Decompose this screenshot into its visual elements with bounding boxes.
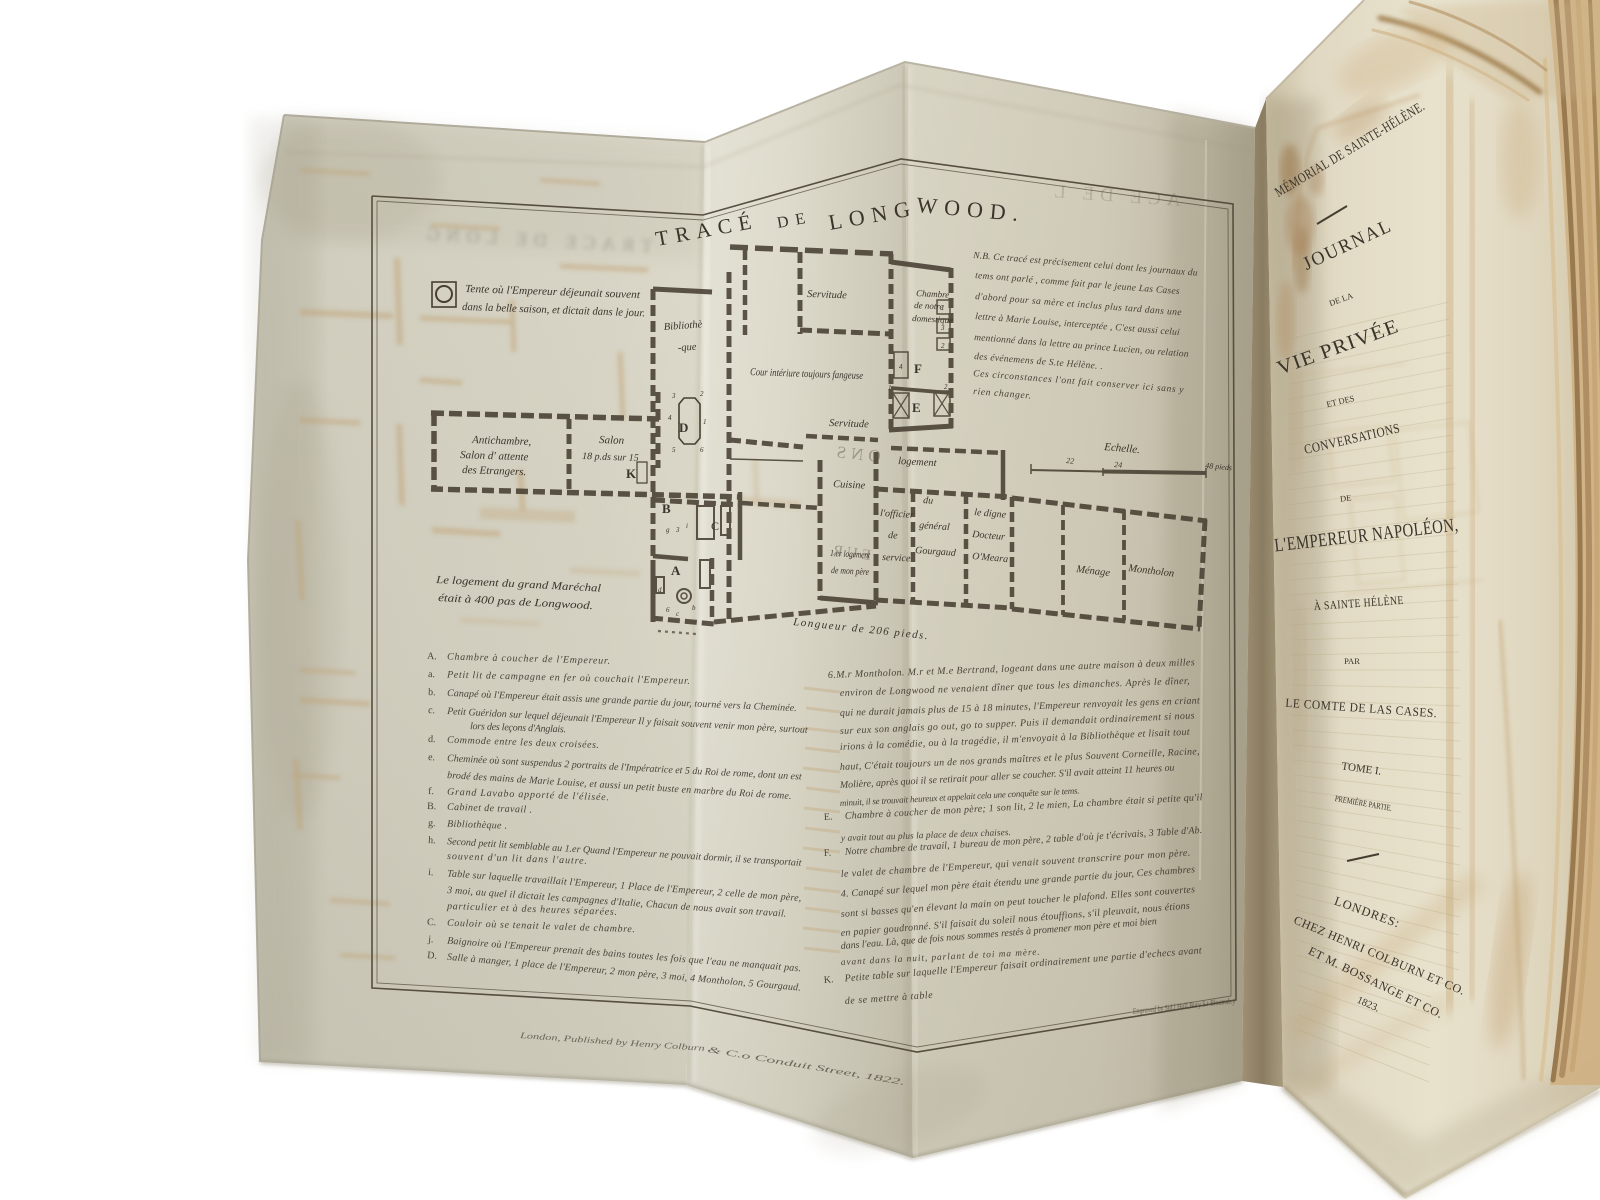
svg-text:4: 4 <box>668 414 672 422</box>
svg-text:l'officier: l'officier <box>880 508 914 521</box>
svg-text:domestique: domestique <box>912 313 953 325</box>
svg-text:24: 24 <box>1114 460 1123 470</box>
svg-text:4: 4 <box>899 363 903 371</box>
svg-text:2: 2 <box>944 383 948 391</box>
svg-text:1: 1 <box>703 418 707 426</box>
svg-text:1.er logement: 1.er logement <box>830 549 871 561</box>
svg-text:b: b <box>692 604 696 612</box>
svg-text:3: 3 <box>675 526 680 534</box>
svg-text:des Etrangers.: des Etrangers. <box>462 464 527 478</box>
svg-text:Chambre: Chambre <box>916 288 950 300</box>
svg-text:général: général <box>919 520 950 533</box>
svg-text:DE: DE <box>1339 492 1351 503</box>
svg-text:22: 22 <box>1066 456 1075 466</box>
svg-text:F: F <box>914 361 922 376</box>
svg-text:1: 1 <box>941 304 945 312</box>
svg-text:logement: logement <box>898 456 938 469</box>
svg-text:Servitude: Servitude <box>829 418 869 430</box>
svg-text:Cuisine: Cuisine <box>833 479 866 492</box>
svg-text:5: 5 <box>672 446 676 454</box>
svg-text:K: K <box>626 466 637 481</box>
svg-text:18 p.ds sur 15: 18 p.ds sur 15 <box>582 451 639 464</box>
svg-text:B: B <box>662 501 671 516</box>
svg-text:de: de <box>888 530 899 542</box>
svg-text:D: D <box>679 420 688 435</box>
svg-text:2: 2 <box>941 342 945 350</box>
svg-text:1: 1 <box>888 384 892 392</box>
svg-text:6: 6 <box>700 446 704 454</box>
svg-text:service: service <box>882 552 911 564</box>
svg-text:de notre: de notre <box>914 300 944 312</box>
svg-text:3: 3 <box>671 392 676 400</box>
svg-text:PAR: PAR <box>1344 656 1360 666</box>
svg-text:d: d <box>658 586 662 594</box>
svg-text:g: g <box>666 526 670 534</box>
svg-text:C: C <box>711 519 719 533</box>
svg-text:2: 2 <box>700 390 704 398</box>
svg-text:-que: -que <box>677 342 697 354</box>
svg-text:Salon: Salon <box>599 434 625 447</box>
svg-text:de mon père: de mon père <box>831 566 869 578</box>
svg-text:Servitude: Servitude <box>807 289 847 301</box>
svg-text:6: 6 <box>666 606 670 614</box>
svg-text:du: du <box>923 495 934 507</box>
svg-text:E: E <box>912 400 921 415</box>
svg-text:A: A <box>671 563 681 578</box>
svg-text:Antichambre,: Antichambre, <box>471 434 532 448</box>
svg-text:Salon d' attente: Salon d' attente <box>460 449 529 463</box>
svg-text:i: i <box>686 522 688 530</box>
svg-text:3: 3 <box>940 324 945 332</box>
